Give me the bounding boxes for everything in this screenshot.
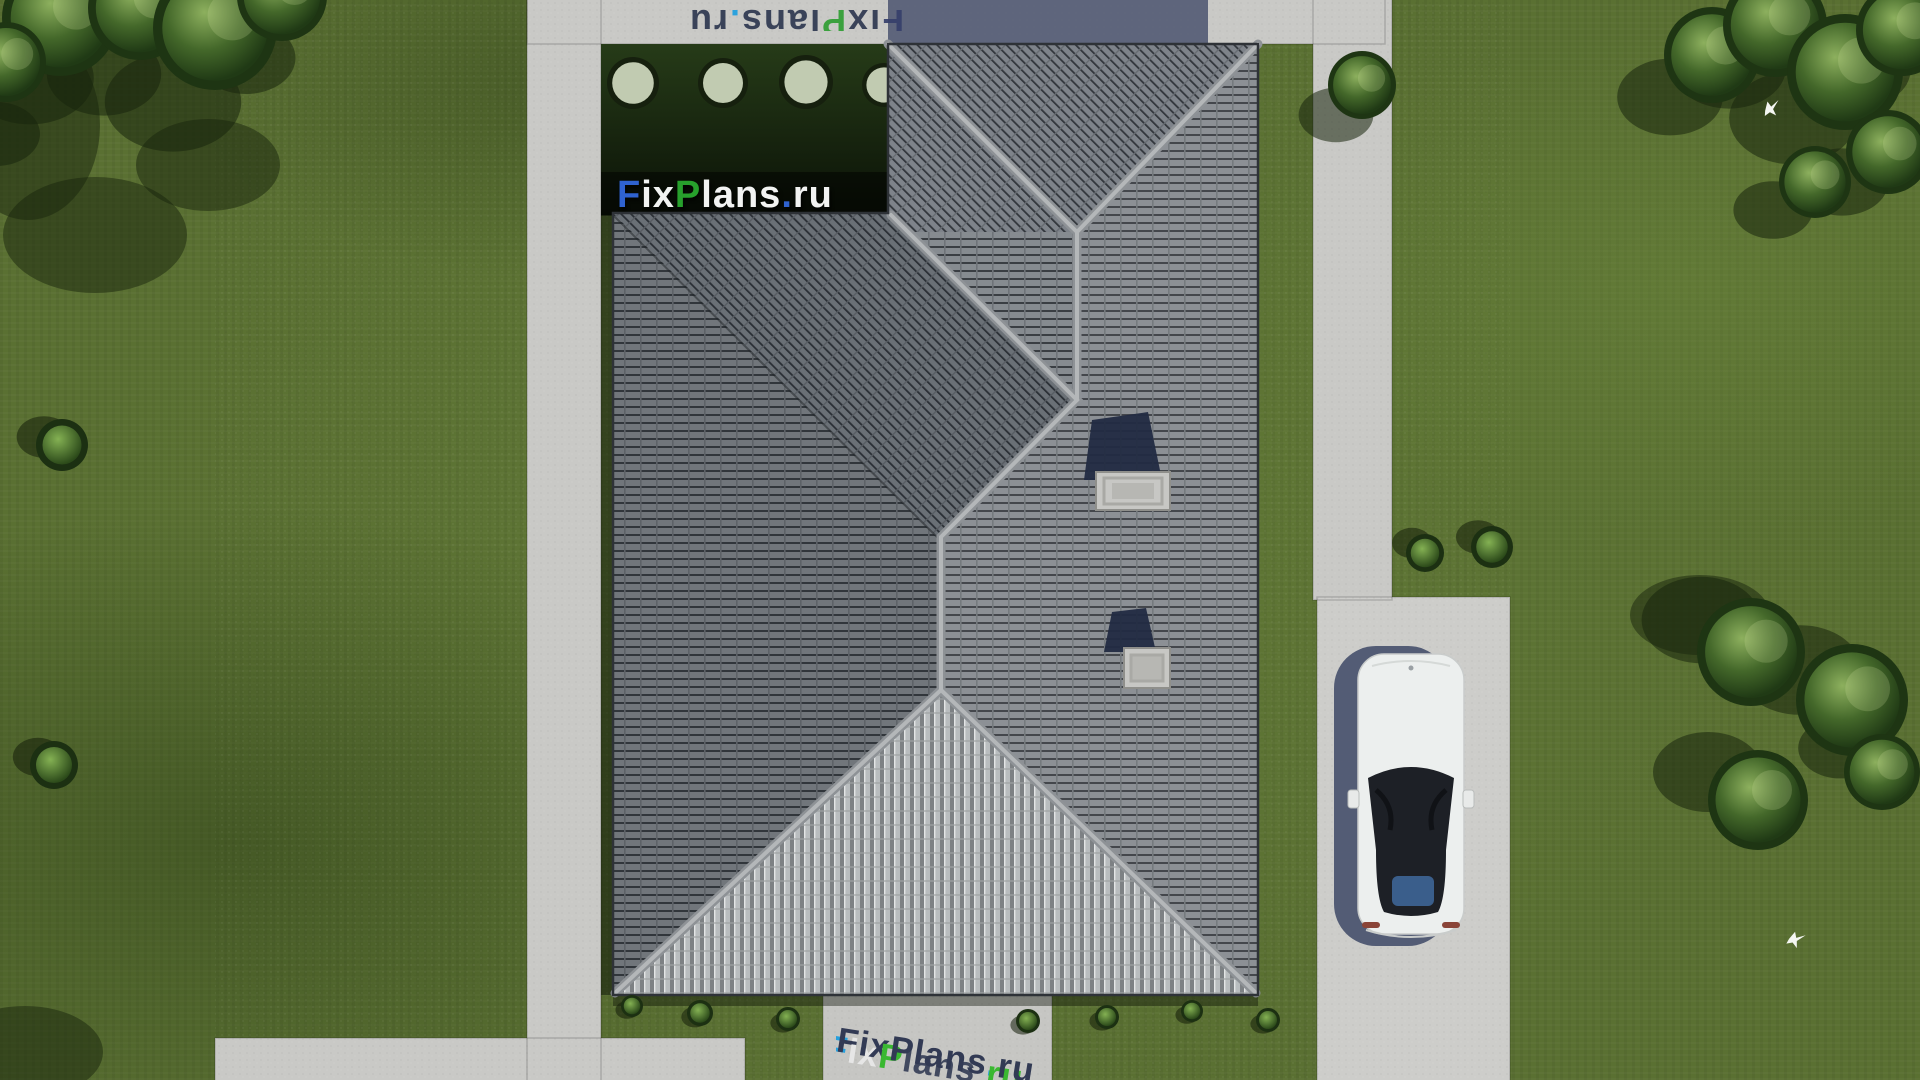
fixplans-watermark-top-text: FixPlans.ru bbox=[688, 4, 904, 31]
tree bbox=[1708, 750, 1808, 850]
flying-bird bbox=[1786, 931, 1806, 949]
bush-foliage bbox=[43, 426, 82, 465]
tree-canopy-highlight bbox=[1877, 749, 1907, 779]
tree-canopy-highlight bbox=[1752, 770, 1792, 810]
tree bbox=[1779, 146, 1851, 218]
tree bbox=[1844, 734, 1920, 810]
garden-bush-foliage bbox=[784, 60, 827, 103]
bush-foliage bbox=[36, 747, 72, 783]
tree-canopy-highlight bbox=[1845, 666, 1890, 711]
tree-canopy-highlight bbox=[1358, 65, 1385, 92]
bush bbox=[13, 738, 78, 789]
bush-foliage bbox=[690, 1003, 710, 1023]
watermark-segment: ix bbox=[641, 174, 675, 217]
tree bbox=[1328, 51, 1396, 119]
silver-garden-bush bbox=[698, 58, 748, 108]
bush-foliage bbox=[779, 1010, 797, 1028]
ground-shadow-blob bbox=[0, 1006, 103, 1080]
bush-foliage bbox=[1411, 539, 1440, 568]
fixplans-logo-main: FixPlans.ru bbox=[617, 174, 833, 217]
fixplans-watermark-bottom-edge: FixPlans.ru bbox=[836, 1026, 1088, 1080]
bush-foliage bbox=[624, 998, 641, 1015]
watermark-segment: . bbox=[781, 174, 793, 217]
car-badge bbox=[1409, 666, 1414, 671]
tree-canopy-highlight bbox=[1811, 160, 1840, 189]
bush-foliage bbox=[1476, 531, 1508, 563]
bush-foliage bbox=[1098, 1008, 1116, 1026]
watermark-segment: F bbox=[880, 4, 904, 31]
scene-graphic bbox=[0, 0, 1920, 1080]
watermark-segment: ru bbox=[995, 1048, 1037, 1080]
tree-canopy-highlight bbox=[1745, 620, 1788, 663]
aerial-roof-plan-scene: FixPlans.ru FixPlans.ru FixPlans.ru bbox=[0, 0, 1920, 1080]
watermark-segment: ru bbox=[793, 174, 833, 217]
watermark-segment: lans bbox=[740, 4, 820, 31]
bush bbox=[17, 416, 88, 471]
silver-garden-bush bbox=[607, 57, 659, 109]
fixplans-watermark-bottom-text: FixPlans.ru bbox=[836, 1026, 1037, 1080]
tree-canopy-highlight bbox=[1, 38, 33, 70]
garden-bush-foliage bbox=[703, 63, 743, 103]
car-rear-window-tint bbox=[1392, 876, 1434, 906]
tree-canopy-highlight bbox=[1883, 127, 1917, 161]
watermark-segment: P bbox=[675, 174, 701, 217]
bush-foliage bbox=[1259, 1011, 1277, 1029]
watermark-segment: P bbox=[820, 4, 846, 31]
car-taillight-left bbox=[1362, 922, 1380, 928]
car-mirror-right bbox=[1463, 790, 1474, 808]
garden-bush-foliage bbox=[612, 62, 654, 104]
car-taillight-right bbox=[1442, 922, 1460, 928]
watermark-segment: . bbox=[728, 4, 740, 31]
car bbox=[1334, 646, 1474, 946]
chimney-1-cap-core bbox=[1112, 483, 1154, 499]
chimney-2-cap-core bbox=[1131, 655, 1163, 681]
watermark-segment: lans bbox=[911, 1035, 990, 1080]
watermark-segment: lans bbox=[701, 174, 781, 217]
silver-garden-bush bbox=[779, 55, 833, 109]
car-mirror-left bbox=[1348, 790, 1359, 808]
tree bbox=[1697, 598, 1805, 706]
watermark-segment: ru bbox=[688, 4, 728, 31]
watermark-segment: ix bbox=[846, 4, 880, 31]
watermark-segment: F bbox=[617, 174, 641, 217]
eave-shadow-bottom bbox=[613, 995, 1258, 1006]
fixplans-watermark-top-edge: FixPlans.ru bbox=[688, 0, 944, 31]
bush-foliage bbox=[1184, 1003, 1201, 1020]
